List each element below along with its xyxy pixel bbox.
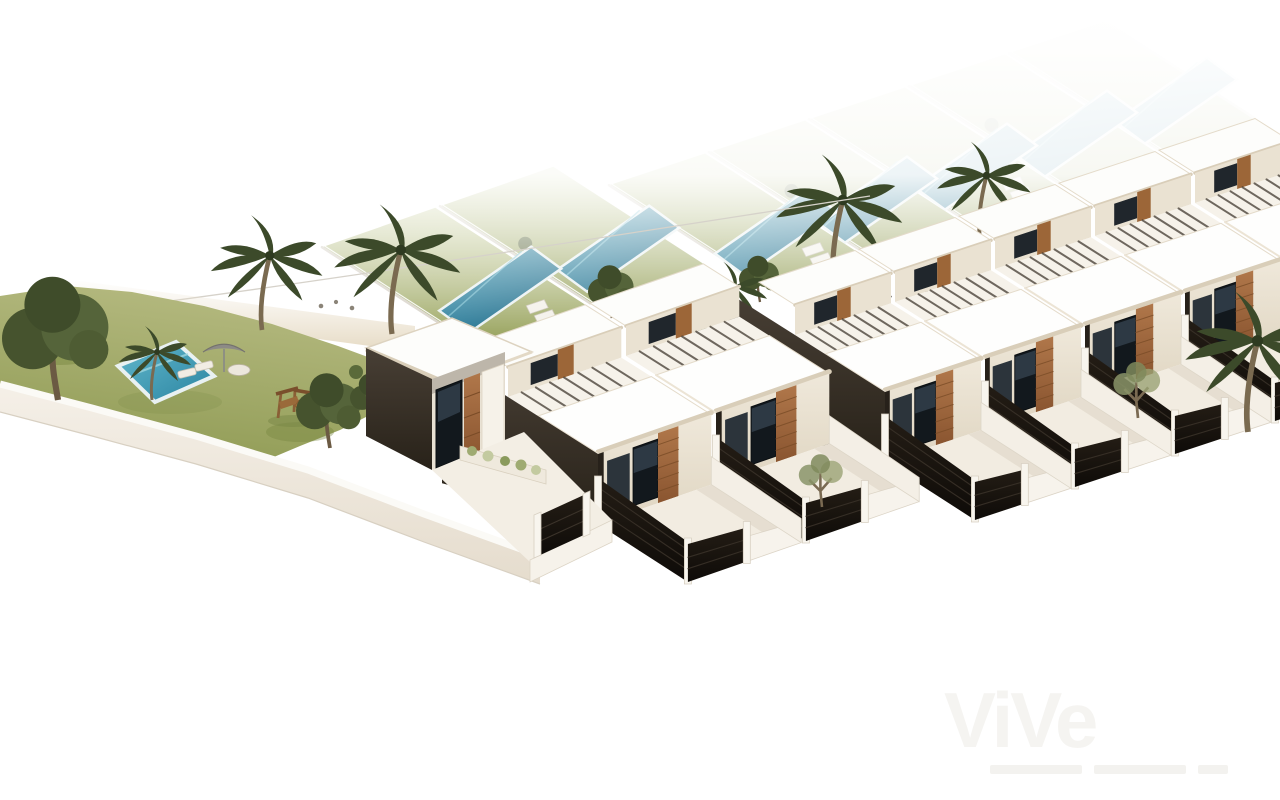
render-canvas: ViVe	[0, 0, 1280, 800]
fence-post	[1221, 398, 1228, 440]
bush	[349, 365, 363, 379]
upper-wood-panel	[558, 344, 574, 380]
upper-wood-panel	[1237, 155, 1251, 190]
planter-shrub	[531, 465, 541, 475]
person-figure	[350, 306, 355, 311]
upper-wood-panel	[676, 303, 692, 339]
planter-shrub	[483, 451, 494, 462]
fence-post	[1021, 464, 1028, 506]
fence-post	[1121, 431, 1128, 473]
fence-post	[861, 481, 868, 523]
fence-post	[534, 512, 541, 558]
villa-white-column	[482, 364, 504, 452]
person-figure	[319, 304, 324, 309]
planter-shrub	[516, 460, 527, 471]
watermark-logo: ViVe	[944, 685, 1228, 755]
upper-wood-panel	[1137, 188, 1151, 223]
planter-shrub	[500, 456, 510, 466]
upper-wood-panel	[1037, 221, 1051, 256]
fence-post	[583, 491, 590, 537]
planter-shrub	[467, 446, 477, 456]
person-figure	[334, 300, 338, 304]
watermark-tagline-bars	[990, 765, 1228, 774]
upper-wood-panel	[837, 287, 851, 322]
day-bed	[228, 365, 250, 376]
upper-wood-panel	[937, 254, 951, 289]
watermark: ViVe	[944, 685, 1228, 774]
fence-post	[743, 522, 750, 564]
